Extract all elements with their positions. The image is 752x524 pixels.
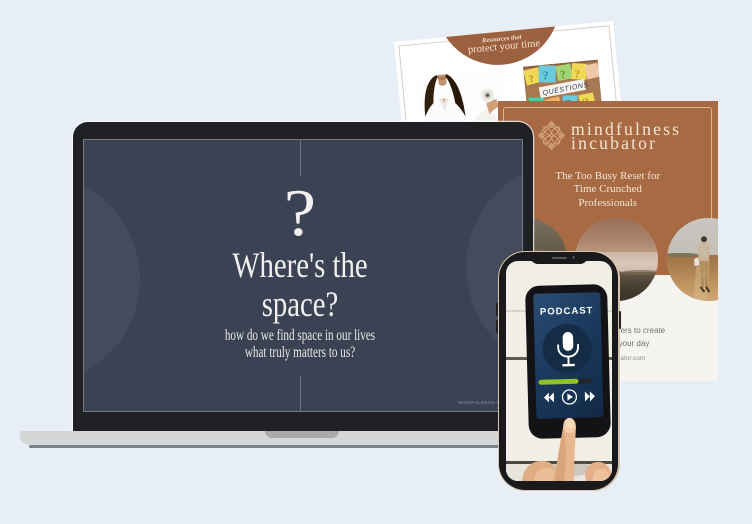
svg-text:?: ?: [543, 68, 549, 82]
svg-text:?: ?: [574, 68, 580, 80]
